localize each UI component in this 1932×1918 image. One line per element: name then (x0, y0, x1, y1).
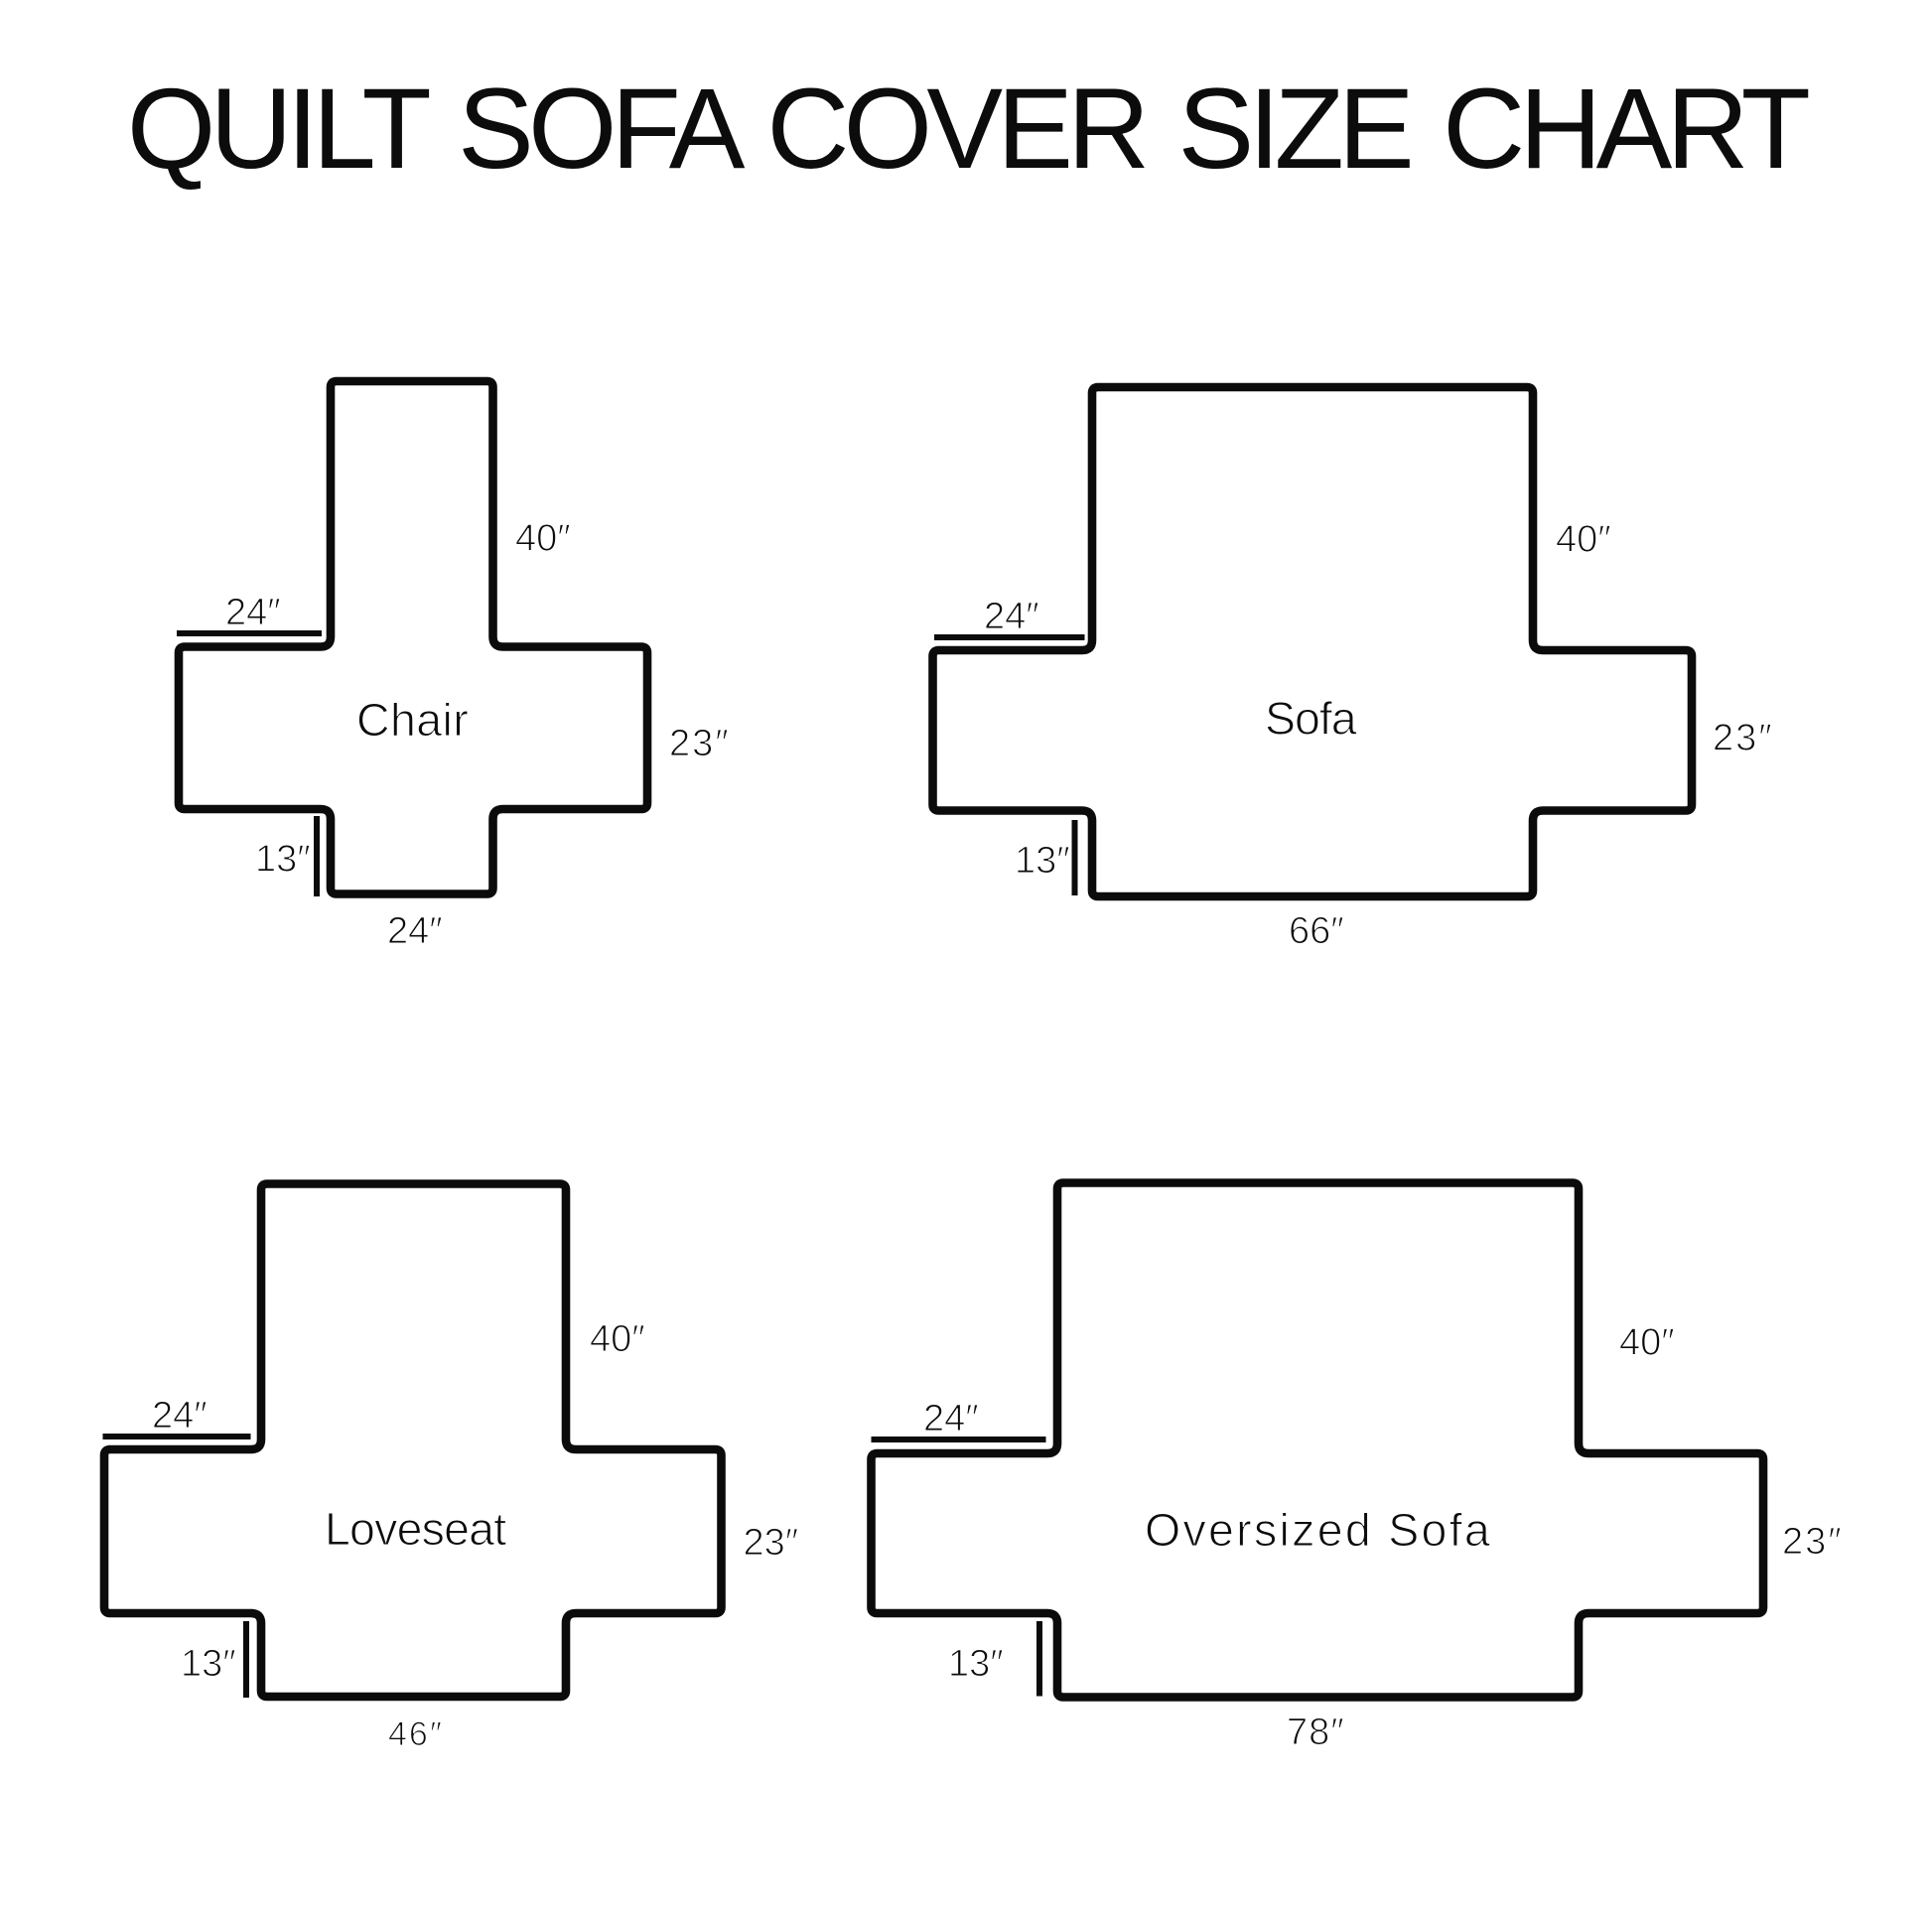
svg-text:24″: 24″ (152, 1395, 207, 1437)
svg-text:78″: 78″ (1287, 1712, 1345, 1753)
svg-text:24″: 24″ (984, 596, 1039, 637)
svg-text:24″: 24″ (923, 1398, 979, 1439)
svg-text:13″: 13″ (948, 1643, 1004, 1685)
svg-text:24″: 24″ (387, 910, 443, 952)
svg-text:Loveseat: Loveseat (325, 1503, 506, 1555)
svg-text:QUILT SOFA COVER SIZE CHART: QUILT SOFA COVER SIZE CHART (127, 66, 1809, 193)
svg-text:23″: 23″ (744, 1522, 799, 1564)
svg-text:23″: 23″ (1782, 1521, 1844, 1563)
svg-text:13″: 13″ (1015, 840, 1070, 882)
svg-text:46″: 46″ (388, 1715, 444, 1753)
svg-text:24″: 24″ (225, 592, 281, 633)
svg-text:23″: 23″ (1713, 718, 1774, 759)
svg-text:23″: 23″ (669, 723, 731, 764)
svg-text:66″: 66″ (1289, 910, 1344, 952)
svg-text:40″: 40″ (1619, 1322, 1675, 1364)
svg-text:13″: 13″ (181, 1643, 236, 1685)
svg-text:40″: 40″ (590, 1318, 645, 1360)
svg-text:13″: 13″ (255, 839, 311, 881)
svg-text:Sofa: Sofa (1265, 693, 1357, 745)
svg-text:40″: 40″ (1556, 519, 1611, 561)
svg-text:Oversized Sofa: Oversized Sofa (1145, 1504, 1492, 1556)
svg-text:40″: 40″ (515, 518, 571, 560)
svg-text:Chair: Chair (356, 694, 469, 746)
